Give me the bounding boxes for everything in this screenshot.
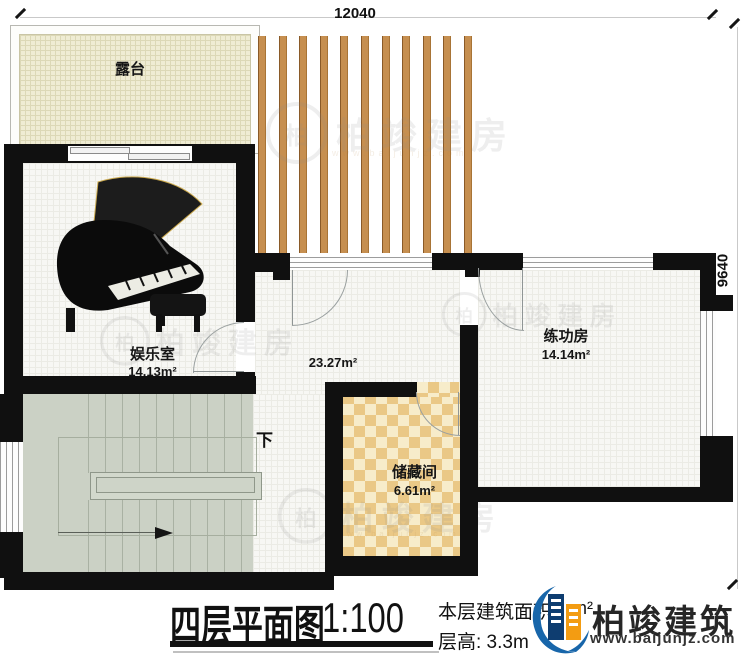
room-terrace xyxy=(19,34,251,146)
stair-direction-arrow xyxy=(155,527,173,539)
room-label-practice: 练功房 xyxy=(520,329,612,346)
wall-segment xyxy=(325,382,417,397)
watermark-logo-icon: 柏 xyxy=(266,102,328,164)
title-underline-thin xyxy=(173,651,439,653)
room-area-entertainment: 14.13m² xyxy=(110,364,195,379)
window xyxy=(523,255,653,268)
room-area-storage: 6.61m² xyxy=(372,483,457,498)
dimension-tick xyxy=(729,18,740,29)
wall-segment xyxy=(460,487,733,502)
room-area-practice: 14.14m² xyxy=(520,347,612,362)
sliding-door-leaf xyxy=(70,147,130,154)
title-underline xyxy=(170,641,433,647)
wall-segment xyxy=(273,267,290,280)
door-leaf xyxy=(193,371,244,372)
watermark: 柏 柏竣建房 www.baijunjz.com xyxy=(266,102,516,164)
pergola-slat xyxy=(258,36,266,253)
sliding-door-leaf xyxy=(128,153,190,160)
floor-plan-canvas: 12040 9640 露台 下 xyxy=(0,0,750,658)
top-dimension-label: 12040 xyxy=(325,5,385,22)
door-leaf xyxy=(522,268,523,330)
room-label-storage: 储藏间 xyxy=(372,465,457,482)
dimension-tick xyxy=(707,9,718,20)
room-label-terrace: 露台 xyxy=(95,62,165,79)
brand-logo-icon xyxy=(528,582,590,658)
wall-segment xyxy=(325,382,343,558)
floor-height-text: 层高: 3.3m xyxy=(438,627,529,654)
stair-rail-inner xyxy=(96,477,255,493)
wall-segment xyxy=(236,144,255,322)
right-dimension-line xyxy=(737,27,738,589)
plan-scale: 1:100 xyxy=(322,594,404,642)
brand-website: www.baijunjz.com xyxy=(590,630,735,647)
grand-piano-image xyxy=(38,168,238,346)
stair-down-label: 下 xyxy=(256,426,273,451)
right-dimension-label: 9640 xyxy=(715,241,732,301)
window xyxy=(700,311,716,436)
room-label-entertainment: 娱乐室 xyxy=(110,347,195,364)
wall-segment xyxy=(325,556,478,576)
door-leaf xyxy=(292,270,293,325)
room-hall-strip xyxy=(253,394,325,572)
stair-direction-line xyxy=(58,532,158,533)
wall-segment xyxy=(460,325,478,570)
wall-segment xyxy=(0,394,23,442)
window xyxy=(0,442,23,532)
room-area-hall: 23.27m² xyxy=(298,355,368,370)
wall-segment xyxy=(4,144,23,395)
window xyxy=(290,257,432,268)
sliding-door xyxy=(68,146,192,161)
wall-segment xyxy=(4,572,334,590)
door-leaf xyxy=(458,392,459,435)
